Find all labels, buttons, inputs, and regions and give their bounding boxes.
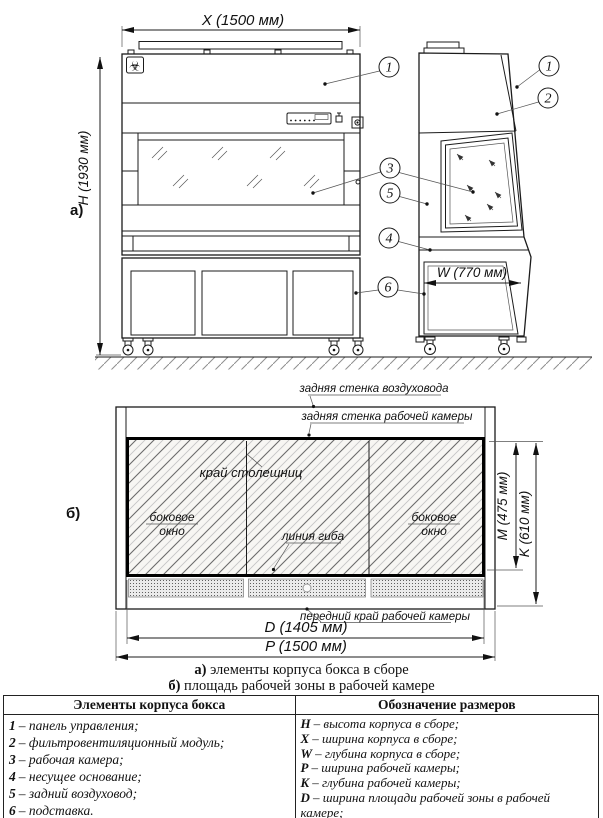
technical-drawing-page: X (1500 мм) ☣ [0, 0, 603, 818]
element-item: 4– несущее основание; [9, 768, 290, 785]
caption-b-prefix: б) [168, 678, 180, 694]
svg-text:3: 3 [386, 162, 394, 177]
view-b-label: б) [66, 505, 80, 522]
svg-text:5: 5 [387, 187, 394, 202]
caster-wheels [425, 337, 510, 355]
dimension-h-label: H (1930 мм) [76, 131, 91, 206]
caption-b-text: площадь рабочей зоны в рабочей камере [180, 678, 434, 694]
size-item: H– высота корпуса в сборе; [301, 717, 593, 732]
stand [122, 258, 363, 355]
caption-a-prefix: а) [194, 662, 206, 678]
svg-text:6: 6 [385, 281, 392, 296]
svg-text:1: 1 [546, 60, 553, 75]
element-item: 6– подставка. [9, 802, 290, 818]
cabinet-lid [128, 42, 353, 55]
svg-text:линия гиба: линия гиба [281, 529, 345, 543]
svg-text:2: 2 [545, 92, 552, 107]
label-duct-back-wall: задняя стенка воздуховода [299, 383, 449, 408]
callout-6: 6 [354, 277, 425, 297]
table-header-elements: Элементы корпуса бокса [4, 696, 296, 715]
ground [95, 357, 592, 370]
dimension-p-label: P (1500 мм) [265, 638, 347, 655]
sizes-cell: H– высота корпуса в сборе; X– ширина кор… [295, 715, 598, 818]
elements-cell: 1– панель управления; 2– фильтровентиляц… [4, 715, 296, 818]
exhaust-duct [424, 42, 464, 54]
plan-view: задняя стенка воздуховода задняя стенка … [66, 383, 543, 661]
element-item: 5– задний воздуховод; [9, 785, 290, 802]
front-view: X (1500 мм) ☣ [70, 12, 363, 355]
svg-text:4: 4 [386, 232, 393, 247]
dimension-d-label: D (1405 мм) [264, 619, 347, 636]
dimension-x-label: X (1500 мм) [201, 12, 284, 29]
size-item: W– глубина корпуса в сборе; [301, 747, 593, 762]
table-header-sizes: Обозначение размеров [295, 696, 598, 715]
dimension-m-label: M (475 мм) [495, 472, 510, 541]
element-item: 1– панель управления; [9, 717, 290, 734]
callout-1-side: 1 [515, 56, 559, 89]
svg-text:задняя стенка рабочей камеры: задняя стенка рабочей камеры [301, 411, 473, 423]
leveling-foot [517, 337, 526, 342]
svg-text:боковое: боковое [149, 510, 194, 524]
legend-table: Элементы корпуса бокса Обозначение разме… [3, 695, 599, 818]
caster-wheels [123, 338, 363, 355]
caption-b: б) площадь рабочей зоны в рабочей камере [0, 678, 603, 695]
element-item: 2– фильтровентиляционный модуль; [9, 734, 290, 751]
work-zone [128, 439, 484, 576]
drawing-svg: X (1500 мм) ☣ [0, 0, 603, 662]
element-item: 3– рабочая камера; [9, 751, 290, 768]
svg-text:окно: окно [421, 524, 447, 538]
svg-text:задняя стенка воздуховода: задняя стенка воздуховода [299, 383, 449, 395]
svg-text:окно: окно [159, 524, 185, 538]
caption-a-text: элементы корпуса бокса в сборе [206, 662, 408, 678]
view-a-label: а) [70, 202, 83, 219]
ground-hatch [95, 358, 592, 370]
svg-text:край столешниц: край столешниц [200, 465, 303, 480]
size-item: D– ширина площади рабочей зоны в рабочей… [301, 791, 593, 818]
perforated-grille [129, 579, 484, 597]
svg-text:боковое: боковое [411, 510, 456, 524]
size-item: P– ширина рабочей камеры; [301, 761, 593, 776]
size-item: K– глубина рабочей камеры; [301, 776, 593, 791]
biohazard-glyph: ☣ [129, 60, 141, 75]
svg-text:1: 1 [386, 61, 393, 76]
dimension-w-label: W (770 мм) [437, 265, 507, 280]
caption-a: а) элементы корпуса бокса в сборе [0, 662, 603, 679]
dimension-k-label: K (610 мм) [517, 491, 532, 558]
side-view: W (770 мм) [416, 42, 531, 355]
size-item: X– ширина корпуса в сборе; [301, 732, 593, 747]
